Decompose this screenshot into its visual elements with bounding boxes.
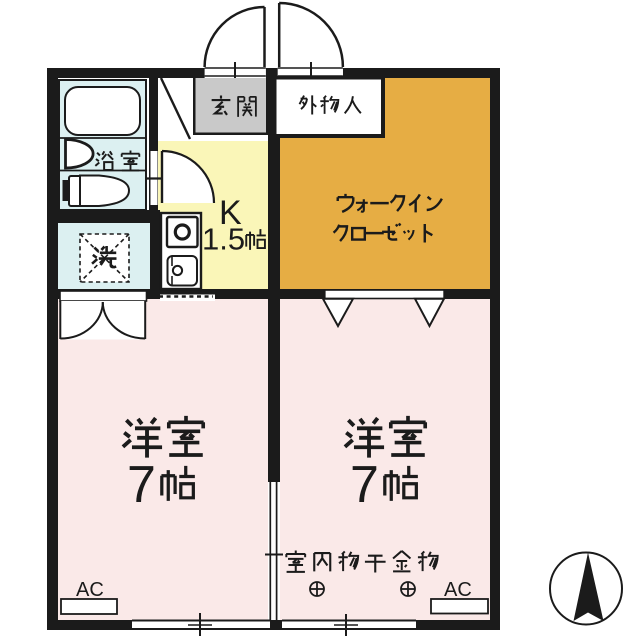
svg-text:AC: AC xyxy=(444,579,472,601)
svg-text:7: 7 xyxy=(350,456,379,514)
svg-text:1.5: 1.5 xyxy=(202,222,245,257)
svg-text:7: 7 xyxy=(127,456,156,514)
svg-text:AC: AC xyxy=(76,579,104,601)
